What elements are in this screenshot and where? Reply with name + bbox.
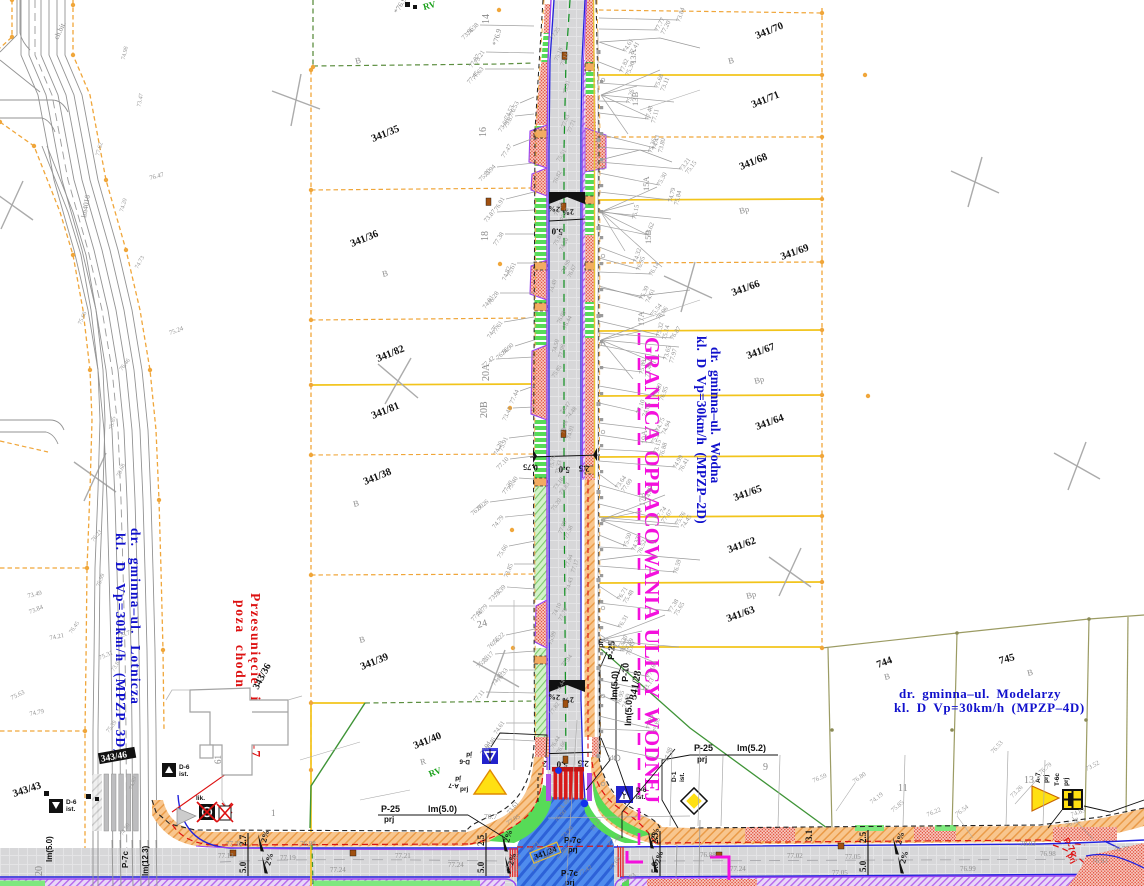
svg-text:76.77: 76.77 — [1113, 845, 1129, 853]
svg-text:D-6: D-6 — [66, 799, 77, 806]
svg-text:kl. D Vp=30km/h (MPZP–2D): kl. D Vp=30km/h (MPZP–2D) — [694, 336, 709, 524]
svg-text:77.02: 77.02 — [787, 852, 803, 860]
svg-text:lm(5.2): lm(5.2) — [737, 743, 766, 753]
svg-text:1: 1 — [271, 808, 276, 818]
svg-text:P-25: P-25 — [694, 743, 713, 753]
svg-text:16: 16 — [478, 127, 489, 137]
svg-text:2.5: 2.5 — [476, 834, 486, 846]
svg-text:77.21: 77.21 — [395, 852, 411, 860]
svg-text:76.93: 76.93 — [1092, 857, 1108, 865]
svg-text:T-6c: T-6c — [1054, 773, 1061, 786]
svg-text:76.99: 76.99 — [960, 865, 976, 873]
svg-text:P-7c: P-7c — [121, 851, 130, 868]
svg-text:lm(12.3): lm(12.3) — [141, 845, 150, 876]
svg-text:3.1: 3.1 — [804, 829, 814, 841]
svg-text:18: 18 — [480, 231, 491, 241]
svg-text:jd: jd — [466, 751, 473, 758]
svg-text:prj: prj — [460, 786, 469, 793]
svg-text:ld: ld — [608, 754, 614, 762]
svg-text:lm(5.0): lm(5.0) — [45, 836, 54, 862]
svg-text:D-1: D-1 — [671, 771, 678, 782]
svg-text:lm(5.0): lm(5.0) — [428, 804, 457, 814]
svg-text:D-6: D-6 — [179, 764, 190, 771]
svg-text:77.24: 77.24 — [330, 866, 346, 874]
svg-text:20: 20 — [34, 866, 45, 876]
svg-text:jd: jd — [455, 775, 462, 782]
svg-text:P-7c: P-7c — [561, 869, 578, 878]
svg-text:78.03: 78.03 — [1020, 840, 1036, 848]
svg-text:5.0: 5.0 — [238, 861, 248, 873]
svg-text:ist.: ist. — [636, 794, 646, 801]
svg-text:77.24: 77.24 — [448, 861, 464, 869]
svg-text:prj: prj — [697, 755, 707, 764]
svg-text:77.19: 77.19 — [280, 854, 296, 862]
svg-text:P-25: P-25 — [606, 641, 617, 660]
svg-text:dr. gminna–ul. Lotnicza: dr. gminna–ul. Lotnicza — [128, 528, 143, 705]
svg-text:P-25: P-25 — [381, 804, 400, 814]
svg-text:77.24: 77.24 — [730, 865, 746, 873]
svg-text:76.98: 76.98 — [300, 840, 316, 848]
svg-text:11: 11 — [898, 783, 908, 794]
svg-text:76.7: 76.7 — [484, 812, 497, 821]
svg-text:dr. gminna–ul. Modelarzy: dr. gminna–ul. Modelarzy — [899, 686, 1061, 701]
svg-text:dr. gminna–ul. Wodna: dr. gminna–ul. Wodna — [708, 347, 723, 484]
svg-text:9: 9 — [763, 762, 768, 773]
svg-text:kl. D Vp=30km/h (MPZP–4D): kl. D Vp=30km/h (MPZP–4D) — [894, 700, 1085, 715]
svg-text:prj: prj — [384, 815, 394, 824]
svg-text:77.13: 77.13 — [218, 852, 234, 860]
svg-text:prj: prj — [568, 845, 578, 854]
svg-text:D-6: D-6 — [459, 757, 470, 765]
svg-text:5.0: 5.0 — [858, 860, 868, 872]
svg-text:77.05: 77.05 — [832, 869, 848, 877]
svg-text:77.35: 77.35 — [226, 840, 242, 848]
svg-text:A-7: A-7 — [448, 781, 459, 789]
svg-text:ist.: ist. — [679, 772, 686, 782]
svg-text:ist.: ist. — [179, 771, 189, 778]
svg-text:20B: 20B — [479, 401, 490, 418]
svg-text:2.5: 2.5 — [578, 463, 590, 474]
svg-text:lik.: lik. — [196, 795, 205, 802]
svg-text:0.75: 0.75 — [523, 462, 538, 473]
svg-text:76.88: 76.88 — [700, 851, 716, 859]
svg-text:77.18: 77.18 — [505, 865, 521, 873]
svg-text:ist.: ist. — [66, 806, 76, 813]
svg-text:2.5: 2.5 — [858, 831, 868, 843]
svg-text:14: 14 — [481, 14, 492, 24]
svg-text:prj: prj — [1063, 778, 1070, 787]
svg-text:5.0: 5.0 — [476, 861, 486, 873]
svg-text:76.98: 76.98 — [1040, 850, 1056, 858]
svg-text:77.05: 77.05 — [845, 853, 861, 861]
